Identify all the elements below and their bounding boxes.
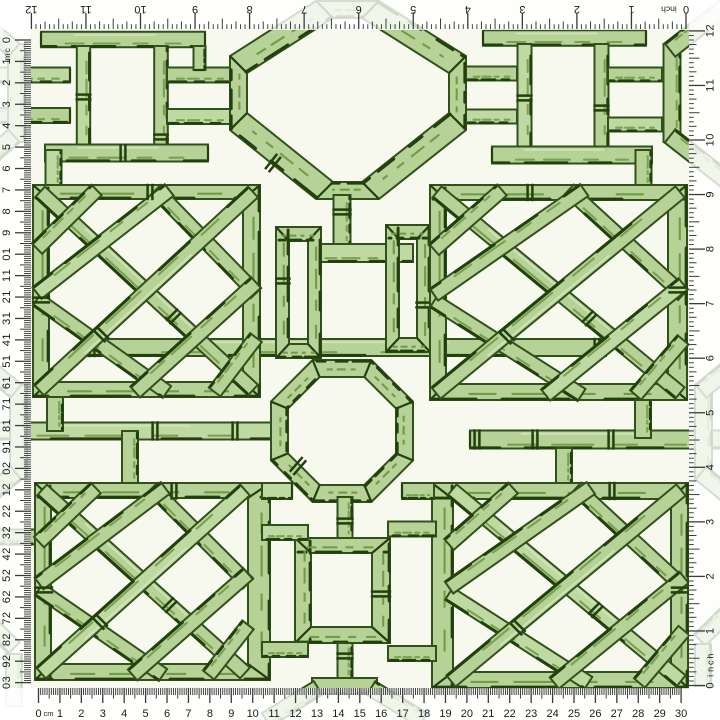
svg-text:9: 9 <box>1 447 13 453</box>
svg-text:7: 7 <box>1 404 13 410</box>
svg-text:5: 5 <box>143 708 149 720</box>
svg-text:5: 5 <box>705 410 717 416</box>
svg-text:5: 5 <box>1 576 13 582</box>
svg-text:16: 16 <box>375 708 387 720</box>
svg-text:13: 13 <box>311 708 323 720</box>
svg-text:4: 4 <box>465 3 471 15</box>
svg-text:18: 18 <box>418 708 430 720</box>
svg-text:21: 21 <box>482 708 494 720</box>
svg-text:8: 8 <box>1 640 13 646</box>
svg-text:0: 0 <box>1 683 13 689</box>
svg-text:4: 4 <box>705 464 717 470</box>
svg-text:3: 3 <box>1 676 13 682</box>
svg-text:c: c <box>706 660 716 665</box>
svg-text:28: 28 <box>632 708 644 720</box>
svg-text:1: 1 <box>1 291 13 297</box>
svg-text:2: 2 <box>1 526 13 532</box>
svg-text:0: 0 <box>1 37 13 43</box>
svg-text:10: 10 <box>247 708 259 720</box>
svg-text:2: 2 <box>705 25 717 31</box>
svg-text:1: 1 <box>705 86 717 92</box>
svg-text:h: h <box>706 654 716 659</box>
svg-text:1: 1 <box>1 334 13 340</box>
svg-text:8: 8 <box>1 208 13 214</box>
svg-text:1: 1 <box>705 79 717 85</box>
svg-text:6: 6 <box>164 708 170 720</box>
svg-text:1: 1 <box>628 3 634 15</box>
svg-text:2: 2 <box>1 297 13 303</box>
svg-text:22: 22 <box>504 708 516 720</box>
svg-text:17: 17 <box>396 708 408 720</box>
svg-text:2: 2 <box>1 548 13 554</box>
svg-text:0: 0 <box>1 254 13 260</box>
svg-text:9: 9 <box>192 3 198 15</box>
svg-text:0: 0 <box>705 134 717 140</box>
svg-text:1: 1 <box>1 355 13 361</box>
svg-text:6: 6 <box>1 383 13 389</box>
svg-text:1: 1 <box>1 398 13 404</box>
svg-text:9: 9 <box>1 661 13 667</box>
svg-text:24: 24 <box>546 708 558 720</box>
svg-text:5: 5 <box>1 144 13 150</box>
svg-text:2: 2 <box>1 511 13 517</box>
svg-text:cm: cm <box>44 709 54 718</box>
svg-text:30: 30 <box>675 708 687 720</box>
svg-text:1: 1 <box>57 708 63 720</box>
svg-text:9: 9 <box>705 192 717 198</box>
svg-text:27: 27 <box>611 708 623 720</box>
svg-text:7: 7 <box>301 3 307 15</box>
svg-text:8: 8 <box>705 246 717 252</box>
svg-text:6: 6 <box>705 355 717 361</box>
svg-text:6: 6 <box>1 165 13 171</box>
svg-text:6: 6 <box>356 3 362 15</box>
svg-text:12: 12 <box>289 708 301 720</box>
svg-text:2: 2 <box>1 569 13 575</box>
svg-text:1: 1 <box>1 248 13 254</box>
svg-text:1: 1 <box>705 31 717 37</box>
svg-text:0: 0 <box>705 682 717 688</box>
svg-text:i: i <box>706 675 716 677</box>
svg-text:2: 2 <box>78 708 84 720</box>
svg-text:7: 7 <box>705 301 717 307</box>
svg-text:5: 5 <box>1 362 13 368</box>
svg-text:29: 29 <box>654 708 666 720</box>
svg-text:7: 7 <box>1 187 13 193</box>
svg-text:2: 2 <box>1 80 13 86</box>
svg-text:0: 0 <box>35 708 41 720</box>
svg-text:15: 15 <box>354 708 366 720</box>
svg-text:1: 1 <box>1 269 13 275</box>
svg-text:12: 12 <box>25 3 37 15</box>
svg-text:8: 8 <box>1 426 13 432</box>
svg-text:1: 1 <box>1 276 13 282</box>
svg-text:1: 1 <box>705 140 717 146</box>
svg-text:8: 8 <box>247 3 253 15</box>
svg-text:6: 6 <box>1 597 13 603</box>
svg-text:0: 0 <box>683 3 689 15</box>
svg-text:9: 9 <box>1 230 13 236</box>
svg-text:3: 3 <box>705 519 717 525</box>
svg-text:25: 25 <box>568 708 580 720</box>
svg-text:n: n <box>706 667 716 672</box>
svg-text:2: 2 <box>1 505 13 511</box>
svg-text:2: 2 <box>1 462 13 468</box>
svg-text:1: 1 <box>705 628 717 634</box>
svg-text:23: 23 <box>525 708 537 720</box>
svg-text:m: m <box>2 53 12 60</box>
svg-text:4: 4 <box>121 708 127 720</box>
svg-text:3: 3 <box>100 708 106 720</box>
svg-text:2: 2 <box>1 612 13 618</box>
svg-text:3: 3 <box>1 319 13 325</box>
svg-text:inch: inch <box>661 5 677 15</box>
svg-text:1: 1 <box>1 419 13 425</box>
svg-text:1: 1 <box>1 312 13 318</box>
svg-text:11: 11 <box>268 708 279 720</box>
svg-text:8: 8 <box>207 708 213 720</box>
svg-text:2: 2 <box>1 591 13 597</box>
svg-text:1: 1 <box>1 441 13 447</box>
svg-text:0: 0 <box>1 469 13 475</box>
svg-text:3: 3 <box>1 101 13 107</box>
svg-text:2: 2 <box>574 3 580 15</box>
svg-text:20: 20 <box>461 708 473 720</box>
svg-text:26: 26 <box>589 708 601 720</box>
svg-text:2: 2 <box>705 573 717 579</box>
svg-text:7: 7 <box>185 708 191 720</box>
svg-text:2: 2 <box>1 483 13 489</box>
svg-text:19: 19 <box>439 708 451 720</box>
svg-text:1: 1 <box>1 490 13 496</box>
svg-text:7: 7 <box>1 619 13 625</box>
svg-text:4: 4 <box>1 554 13 560</box>
svg-text:3: 3 <box>519 3 525 15</box>
svg-text:9: 9 <box>228 708 234 720</box>
svg-text:14: 14 <box>332 708 344 720</box>
svg-text:2: 2 <box>1 655 13 661</box>
svg-text:11: 11 <box>80 3 91 15</box>
svg-text:4: 4 <box>1 340 13 346</box>
svg-text:3: 3 <box>1 533 13 539</box>
svg-text:4: 4 <box>1 123 13 129</box>
svg-text:2: 2 <box>1 633 13 639</box>
svg-text:10: 10 <box>134 3 146 15</box>
svg-text:1: 1 <box>1 376 13 382</box>
svg-text:5: 5 <box>410 3 416 15</box>
